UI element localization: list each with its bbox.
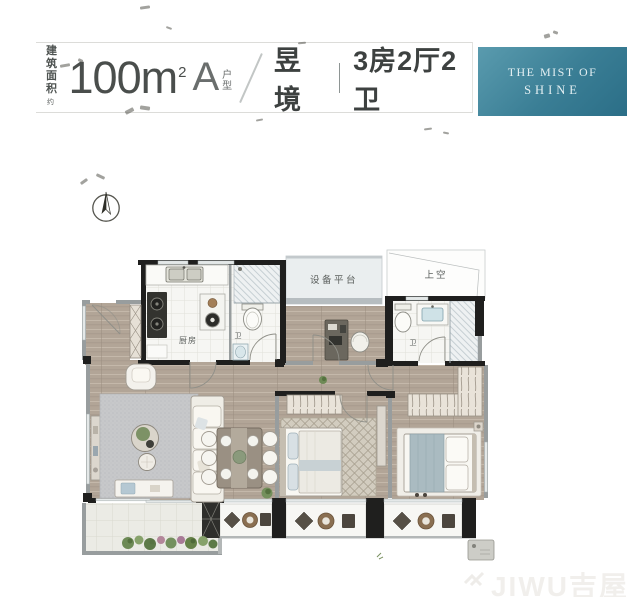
project-badge: THE MIST OF SHINE [478,47,627,116]
area-group: 建筑 面积约 100m2 [46,45,185,110]
compression-artifact [443,131,449,134]
ac-unit [468,540,494,560]
compression-artifact [424,127,432,130]
entry-cabinet [130,305,141,358]
header-bar: 建筑 面积约 100m2 A 户 型 昱境 3房2厅2卫 [36,42,473,113]
project-name: 昱境 [274,39,330,117]
floorplan-drawing: 厨房 设备平台 上空 卫 卫 [80,248,500,564]
equipment-platform-label: 设备平台 [310,274,358,286]
unit-type: A 户 型 [192,55,232,100]
badge-line1: THE MIST OF [508,65,598,80]
floorplan-card: 建筑 面积约 100m2 A 户 型 昱境 3房2厅2卫 THE MIST OF… [0,0,633,597]
area-unit-sup: 2 [178,64,185,81]
compression-artifact [256,118,263,121]
divider-slash [239,52,263,102]
unit-type-word: 户 型 [222,70,232,92]
compression-artifact [166,26,172,30]
area-approx-mark: 约 [47,99,55,106]
compression-artifact [96,173,105,180]
area-label-bottom: 面积 [46,70,58,95]
kitchen-label: 厨房 [179,335,197,345]
bath2-label: 卫 [410,339,417,347]
badge-line2: SHINE [524,83,581,98]
compression-artifact [544,33,551,38]
area-label: 建筑 面积约 [46,45,64,110]
hatched-pillar [202,500,220,538]
divider-bar [339,63,340,93]
layout-spec: 3房2厅2卫 [353,39,472,117]
area-value: 100m2 [69,52,186,104]
compression-artifact [553,30,559,35]
watermark: JIWU吉屋 [463,571,629,597]
compass-icon [84,184,128,228]
compression-artifact [140,5,150,9]
watermark-text: JIWU吉屋 [491,573,629,597]
area-unit: m [141,52,179,103]
watermark-logo-icon [463,571,489,587]
area-label-top: 建筑 [46,45,58,70]
unit-type-word-top: 户 [222,70,232,81]
bath1-label: 卫 [235,332,242,340]
open-above-label: 上空 [424,269,447,281]
unit-type-letter: A [192,55,219,100]
unit-type-word-bottom: 型 [222,81,232,92]
